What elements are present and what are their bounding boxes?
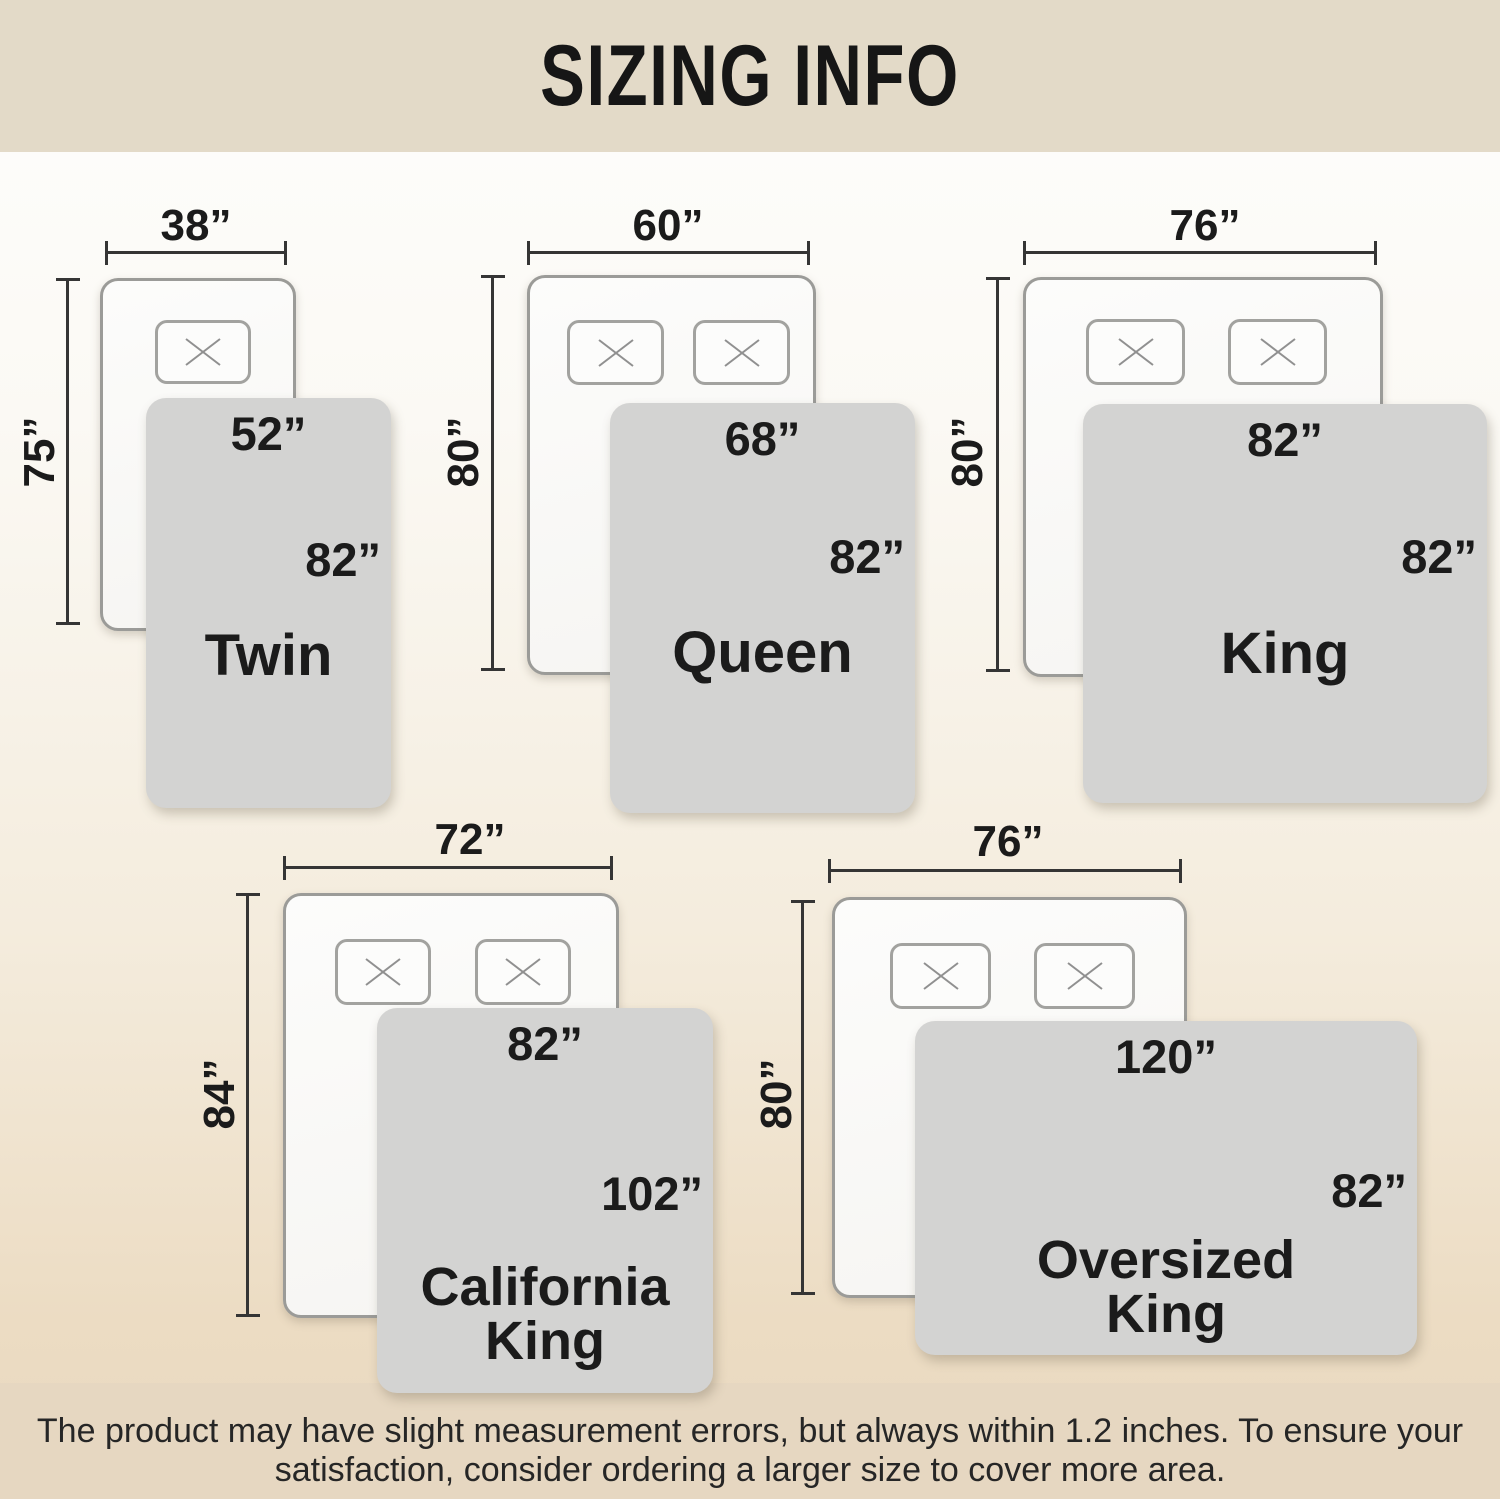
bed-width-dimension-line [105, 251, 287, 254]
x-icon [364, 957, 402, 987]
footer-note-line2: satisfaction, consider ordering a larger… [0, 1451, 1500, 1490]
header-banner: SIZING INFO [0, 0, 1500, 152]
size-name-label: Twin [146, 628, 391, 684]
size-name-label: Queen [610, 625, 915, 681]
bed-length-dimension-label: 80” [943, 417, 993, 488]
size-name-label: California King [377, 1260, 713, 1368]
blanket-width-label: 82” [377, 1016, 713, 1071]
x-icon [723, 338, 761, 368]
bed-length-dimension-label: 80” [439, 417, 489, 488]
x-icon [1117, 337, 1155, 367]
blanket-width-label: 120” [915, 1029, 1417, 1084]
blanket: 82” 102” California King [377, 1008, 713, 1393]
pillow-icon [890, 943, 991, 1009]
pillow-icon [475, 939, 571, 1005]
pillow-icon [693, 320, 790, 385]
bed-width-dimension-label: 38” [161, 201, 232, 251]
bed-length-dimension-line [996, 277, 999, 672]
blanket-length-label: 82” [1401, 529, 1477, 584]
page-title: SIZING INFO [540, 27, 960, 126]
bed-length-dimension-label: 84” [195, 1059, 245, 1130]
pillow-icon [567, 320, 664, 385]
footer-note-line1: The product may have slight measurement … [0, 1412, 1500, 1451]
bed-width-dimension-line [527, 251, 810, 254]
bed-length-dimension-label: 75” [15, 417, 65, 488]
pillow-icon [1228, 319, 1327, 385]
sizing-info-graphic: SIZING INFO The product may have slight … [0, 0, 1500, 1499]
footer-note: The product may have slight measurement … [0, 1412, 1500, 1490]
bed-width-dimension-label: 76” [1170, 201, 1241, 251]
blanket-length-label: 102” [601, 1166, 703, 1221]
bed-width-dimension-label: 60” [633, 201, 704, 251]
pillow-icon [155, 320, 251, 384]
blanket-width-label: 82” [1083, 412, 1487, 467]
pillow-icon [335, 939, 431, 1005]
blanket: 52” 82” Twin [146, 398, 391, 808]
bed-width-dimension-line [1023, 251, 1377, 254]
bed-length-dimension-line [491, 275, 494, 671]
x-icon [184, 337, 222, 367]
x-icon [1259, 337, 1297, 367]
blanket-length-label: 82” [305, 532, 381, 587]
blanket: 120” 82” Oversized King [915, 1021, 1417, 1355]
bed-length-dimension-label: 80” [752, 1059, 802, 1130]
pillow-icon [1086, 319, 1185, 385]
bed-length-dimension-line [801, 900, 804, 1295]
blanket-width-label: 52” [146, 406, 391, 461]
bed-width-dimension-line [283, 866, 613, 869]
bed-width-dimension-label: 76” [973, 817, 1044, 867]
blanket-width-label: 68” [610, 411, 915, 466]
blanket-length-label: 82” [829, 529, 905, 584]
x-icon [922, 961, 960, 991]
size-name-label: Oversized King [915, 1233, 1417, 1341]
size-name-label: King [1083, 626, 1487, 682]
blanket: 82” 82” King [1083, 404, 1487, 803]
bed-width-dimension-label: 72” [435, 815, 506, 865]
x-icon [597, 338, 635, 368]
blanket: 68” 82” Queen [610, 403, 915, 813]
blanket-length-label: 82” [1331, 1163, 1407, 1218]
x-icon [1066, 961, 1104, 991]
pillow-icon [1034, 943, 1135, 1009]
bed-width-dimension-line [828, 869, 1182, 872]
bed-length-dimension-line [246, 893, 249, 1317]
bed-length-dimension-line [66, 278, 69, 625]
x-icon [504, 957, 542, 987]
